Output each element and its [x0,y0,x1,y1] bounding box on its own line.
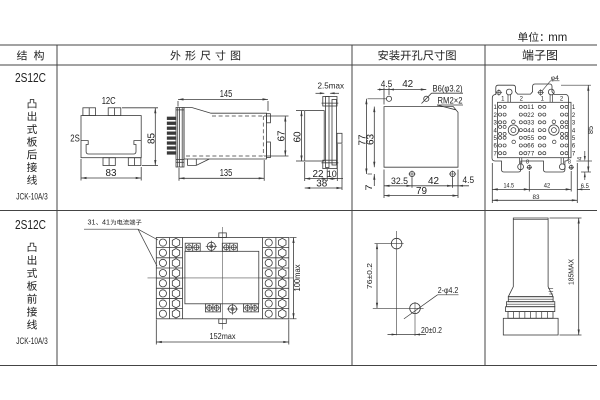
svg-text:8: 8 [568,159,571,165]
svg-text:10: 10 [327,169,337,180]
svg-text:1: 1 [572,105,576,111]
svg-text:1: 1 [541,97,545,103]
svg-text:4: 4 [577,156,584,160]
svg-text:6: 6 [531,144,535,150]
svg-text:38: 38 [316,178,327,189]
svg-text:7: 7 [494,151,498,157]
svg-text:6: 6 [572,144,576,150]
svg-text:5: 5 [572,136,576,142]
svg-text:7: 7 [572,151,576,157]
svg-text:63: 63 [366,134,377,145]
svg-text:B6(φ3.2): B6(φ3.2) [433,83,463,94]
svg-text:6: 6 [494,144,498,150]
svg-text:7: 7 [531,151,535,157]
svg-text:135: 135 [220,168,233,179]
svg-text:2.5max: 2.5max [318,80,345,90]
svg-text:83: 83 [533,194,540,201]
svg-text:7: 7 [364,185,375,191]
svg-text:145: 145 [220,89,233,100]
svg-text:3: 3 [531,121,535,127]
svg-text:100max: 100max [293,265,302,292]
svg-text:79: 79 [416,186,427,197]
svg-text:76±0.2: 76±0.2 [365,263,374,289]
svg-text:JCK-10A/3: JCK-10A/3 [16,336,48,346]
svg-text:2S: 2S [70,134,80,145]
svg-text:2S12C: 2S12C [15,218,46,232]
svg-text:12C: 12C [102,96,116,107]
svg-text:5: 5 [494,136,498,142]
svg-text:8: 8 [526,159,529,165]
svg-text:31: 31 [88,218,96,227]
svg-text:JCK-10A/3: JCK-10A/3 [16,192,48,202]
svg-text:83: 83 [106,168,117,179]
svg-text:85: 85 [588,126,595,134]
svg-text:42: 42 [428,176,439,187]
svg-text:2: 2 [494,113,498,119]
svg-text:4: 4 [531,128,535,134]
svg-text:4: 4 [494,128,498,134]
svg-text:152max: 152max [210,332,236,341]
svg-text:20±0.2: 20±0.2 [421,326,442,335]
svg-text:1: 1 [501,97,505,103]
svg-text:3: 3 [572,121,576,127]
svg-text:32.5: 32.5 [391,176,408,187]
svg-text:2S12C: 2S12C [15,71,46,85]
svg-text:185MAX: 185MAX [566,259,575,285]
svg-text:1: 1 [494,105,498,111]
svg-text:2: 2 [520,97,524,103]
svg-text:2: 2 [531,113,535,119]
svg-text:41: 41 [102,218,110,227]
svg-text:φ4: φ4 [551,75,559,82]
svg-text:42: 42 [402,79,413,90]
svg-text:85: 85 [146,133,157,144]
svg-text:4: 4 [572,128,576,134]
svg-text:2: 2 [560,97,564,103]
svg-text:14.5: 14.5 [504,183,515,190]
svg-text:2: 2 [572,113,576,119]
svg-text:mm: mm [548,30,567,44]
svg-text:5: 5 [531,136,535,142]
svg-text:6.5: 6.5 [581,183,589,190]
svg-text:60: 60 [293,131,304,142]
svg-text:4.5: 4.5 [381,79,393,90]
svg-text:3: 3 [494,121,498,127]
svg-text:4.5: 4.5 [463,175,475,186]
svg-text:42: 42 [544,183,551,190]
svg-text:67: 67 [276,130,287,141]
svg-text:2-φ4.2: 2-φ4.2 [438,286,459,295]
svg-text:1: 1 [531,105,535,111]
